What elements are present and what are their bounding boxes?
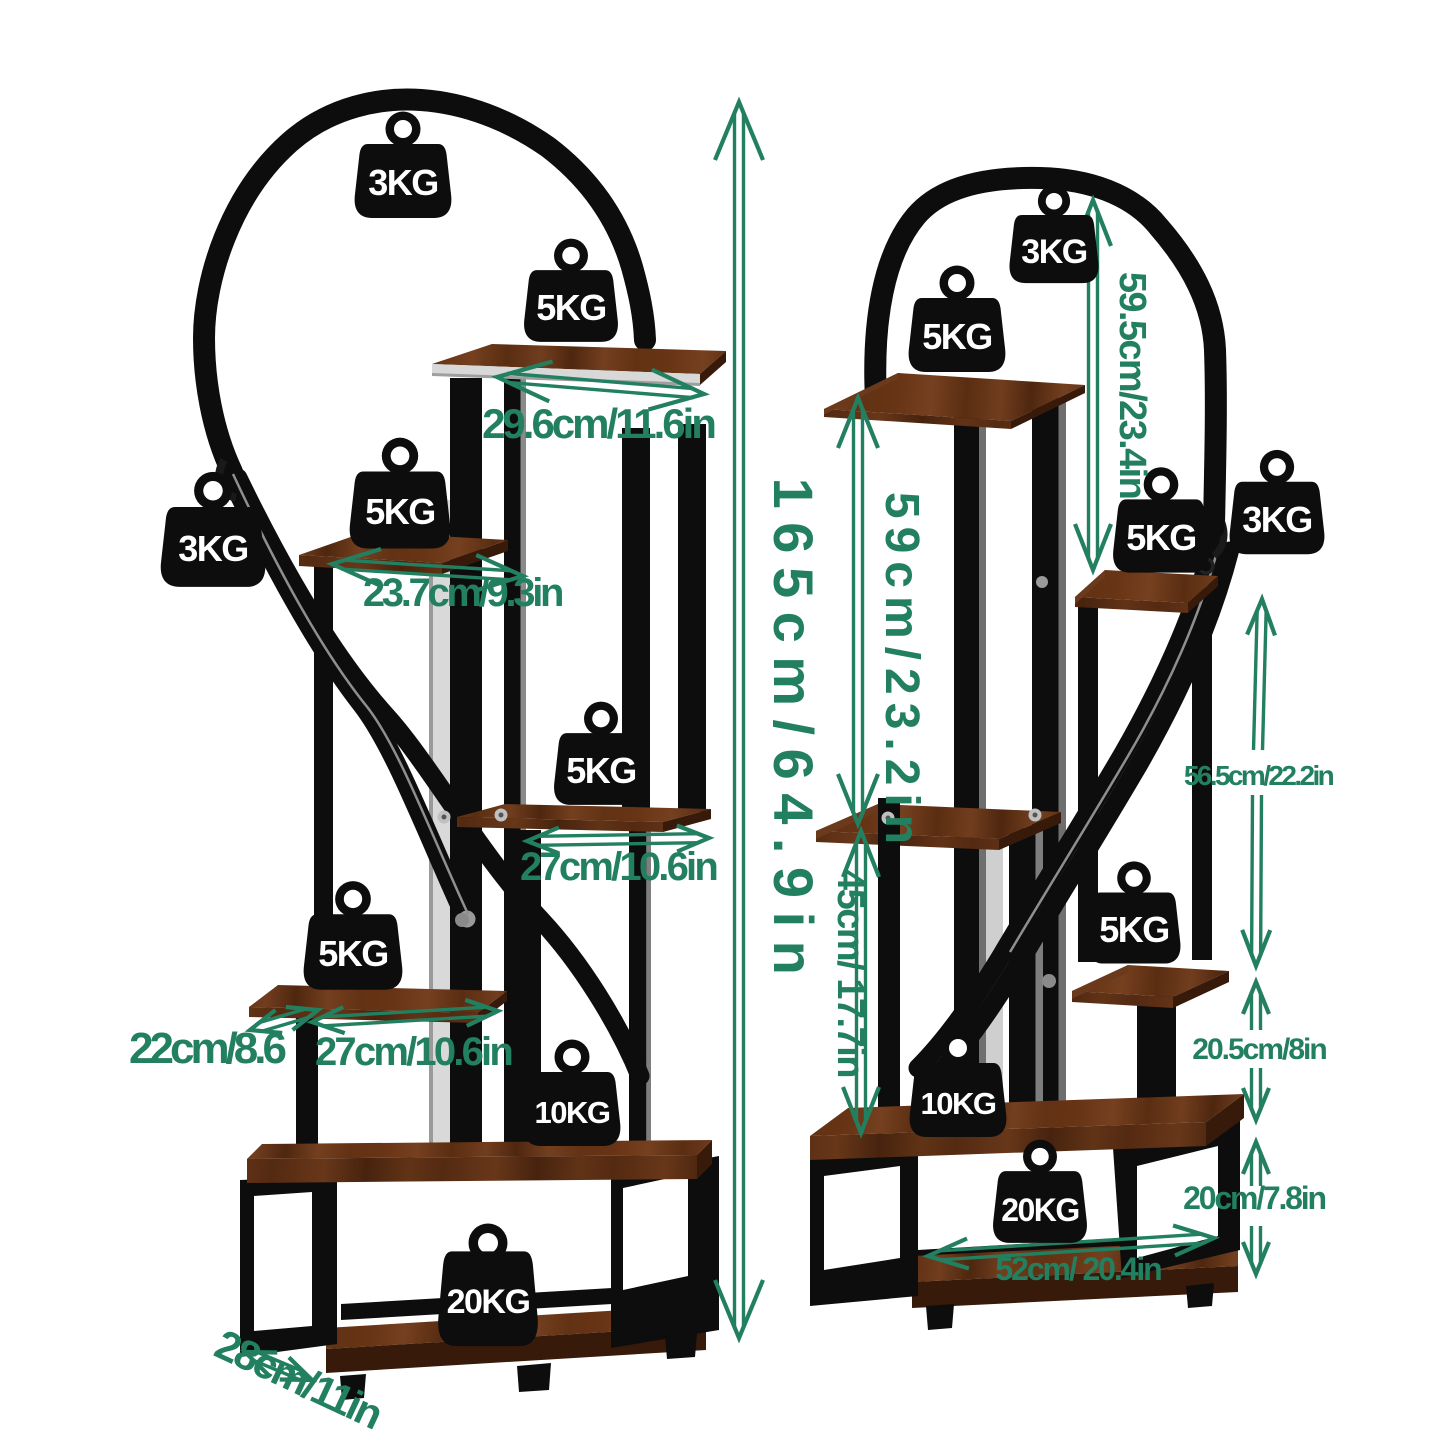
svg-text:27cm/10.6in: 27cm/10.6in [315, 1030, 511, 1074]
svg-text:5KG: 5KG [1126, 517, 1196, 558]
svg-text:27cm/10.6in: 27cm/10.6in [520, 845, 716, 889]
svg-text:20cm/7.8in: 20cm/7.8in [1183, 1180, 1325, 1216]
svg-text:3KG: 3KG [1021, 233, 1086, 271]
svg-text:5KG: 5KG [536, 287, 606, 328]
svg-text:10KG: 10KG [535, 1095, 610, 1130]
svg-text:20KG: 20KG [447, 1283, 530, 1321]
svg-text:52cm/ 20.4in: 52cm/ 20.4in [995, 1251, 1161, 1287]
svg-text:20KG: 20KG [1001, 1192, 1079, 1228]
svg-text:5KG: 5KG [1099, 909, 1169, 950]
svg-text:5KG: 5KG [566, 750, 636, 791]
svg-text:59cm/23.2in: 59cm/23.2in [875, 492, 928, 852]
svg-text:165cm/64.9in: 165cm/64.9in [762, 478, 825, 989]
svg-text:29.6cm/11.6in: 29.6cm/11.6in [482, 400, 715, 447]
svg-text:22cm/8.6: 22cm/8.6 [129, 1024, 285, 1073]
svg-text:10KG: 10KG [921, 1086, 996, 1121]
svg-text:23.7cm/9.3in: 23.7cm/9.3in [363, 571, 562, 615]
svg-text:5KG: 5KG [365, 491, 435, 532]
svg-text:45cm/ 17.7in: 45cm/ 17.7in [829, 869, 871, 1077]
svg-text:3KG: 3KG [1242, 499, 1312, 540]
svg-text:5KG: 5KG [922, 316, 992, 357]
svg-text:56.5cm/22.2in: 56.5cm/22.2in [1184, 760, 1334, 791]
svg-text:5KG: 5KG [318, 933, 388, 974]
svg-text:3KG: 3KG [178, 528, 248, 569]
svg-text:3KG: 3KG [368, 162, 438, 203]
svg-text:20.5cm/8in: 20.5cm/8in [1192, 1033, 1326, 1066]
svg-text:59.5cm/23.4in: 59.5cm/23.4in [1111, 272, 1153, 498]
